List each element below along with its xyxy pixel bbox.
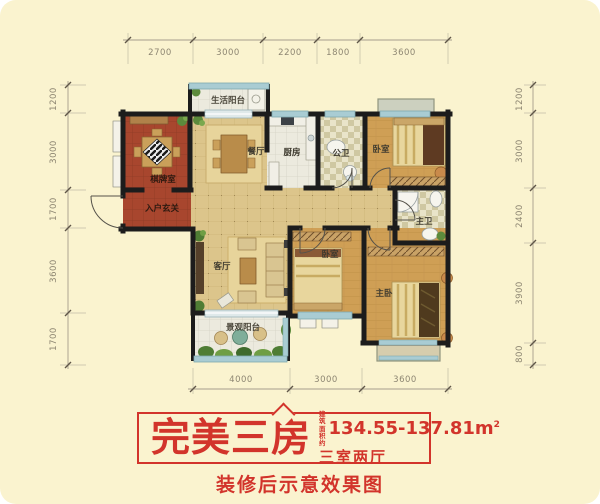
bath-plant [437, 232, 446, 241]
dim-left-3: 3600 [49, 259, 59, 283]
washing-machine [248, 89, 265, 110]
balcony-chair [215, 332, 228, 345]
label-chess-room: 棋牌室 [149, 174, 176, 185]
armchair [238, 238, 256, 250]
label-view-balcony: 景观阳台 [226, 322, 261, 333]
dim-right-2: 2400 [515, 204, 525, 228]
label-entry: 入户玄关 [144, 203, 180, 214]
floorplan-drawing: 生活阳台 餐厅 厨房 公卫 卧室 棋牌室 入户玄关 主卫 客厅 卧室 主卧 景观… [0, 0, 600, 408]
label-bedroom-top: 卧室 [372, 144, 390, 155]
coffee-table [240, 258, 256, 284]
dim-right-0: 1200 [515, 87, 525, 111]
kitchen-window [272, 111, 308, 117]
area-prefix-top: 建筑 [319, 411, 326, 426]
area-line: 建筑 面积约 134.55-137.81m2 [319, 411, 500, 448]
floorplan-card: 生活阳台 餐厅 厨房 公卫 卧室 棋牌室 入户玄关 主卫 客厅 卧室 主卧 景观… [0, 0, 600, 504]
bed-top-pillows [394, 118, 444, 125]
window-bay-box [322, 318, 338, 328]
master-toilet [430, 191, 442, 207]
area-number: 134.55-137.81m [329, 418, 494, 439]
dim-top-1: 3000 [216, 48, 240, 58]
dim-right-1: 3000 [515, 139, 525, 163]
dining-table [221, 135, 247, 173]
armchair [238, 291, 256, 303]
sofa [266, 243, 284, 297]
dim-top-0: 2700 [148, 48, 172, 58]
window-bay-box [300, 318, 316, 328]
label-kitchen: 厨房 [283, 147, 300, 158]
guest-bath-window [325, 111, 355, 117]
area-value: 134.55-137.81m2 [329, 419, 500, 439]
area-prefix-bottom: 面积约 [319, 426, 326, 448]
bedroom-top-window [380, 111, 430, 117]
label-master-bath: 主卫 [415, 216, 433, 227]
banner-title: 完美三房 [151, 419, 311, 458]
dim-top-3: 1800 [326, 48, 350, 58]
label-living: 客厅 [212, 261, 231, 272]
dim-left-1: 3000 [49, 140, 59, 164]
caption: 装修后示意效果图 [0, 470, 600, 497]
area-exponent: 2 [494, 420, 500, 430]
wardrobe-master [368, 247, 444, 256]
entry-door [91, 196, 123, 228]
dim-right-3: 3900 [515, 281, 525, 305]
dim-bottom-0: 4000 [229, 375, 253, 385]
dim-right-4: 800 [515, 345, 525, 363]
dim-top-4: 3600 [392, 48, 416, 58]
layout-type: 三室两厅 [319, 449, 500, 466]
banner: 完美三房 建筑 面积约 134.55-137.81m2 三室两厅 [137, 412, 431, 464]
dim-left-4: 1700 [49, 327, 59, 351]
bedroom-mid-window [298, 312, 352, 319]
label-master-bedroom: 主卧 [375, 288, 393, 299]
banner-details: 建筑 面积约 134.55-137.81m2 三室两厅 [319, 411, 500, 466]
area-prefix: 建筑 面积约 [319, 411, 326, 448]
fridge [269, 162, 279, 186]
wardrobe-top-bedroom [390, 177, 445, 186]
view-balcony-railing [194, 356, 287, 362]
tv-cabinet [196, 242, 204, 294]
service-balcony-window [189, 83, 269, 89]
view-balcony-glass [283, 318, 288, 356]
master-sink [422, 228, 438, 240]
label-bedroom-mid: 卧室 [321, 249, 339, 260]
bed-top-dark-bedding [423, 119, 444, 165]
chess-cabinet [130, 116, 168, 124]
label-service-balcony: 生活阳台 [211, 95, 246, 106]
dim-left-0: 1200 [49, 87, 59, 111]
label-guest-bath: 公卫 [332, 149, 350, 159]
dim-top-2: 2200 [278, 48, 302, 58]
label-dining: 餐厅 [246, 146, 265, 157]
hallway-floor [191, 188, 395, 228]
dim-bottom-1: 3000 [314, 375, 338, 385]
dim-bottom-2: 3600 [393, 375, 417, 385]
kitchen-sink [308, 135, 314, 141]
master-bay-window [379, 340, 437, 345]
dim-left-2: 1700 [49, 197, 59, 221]
